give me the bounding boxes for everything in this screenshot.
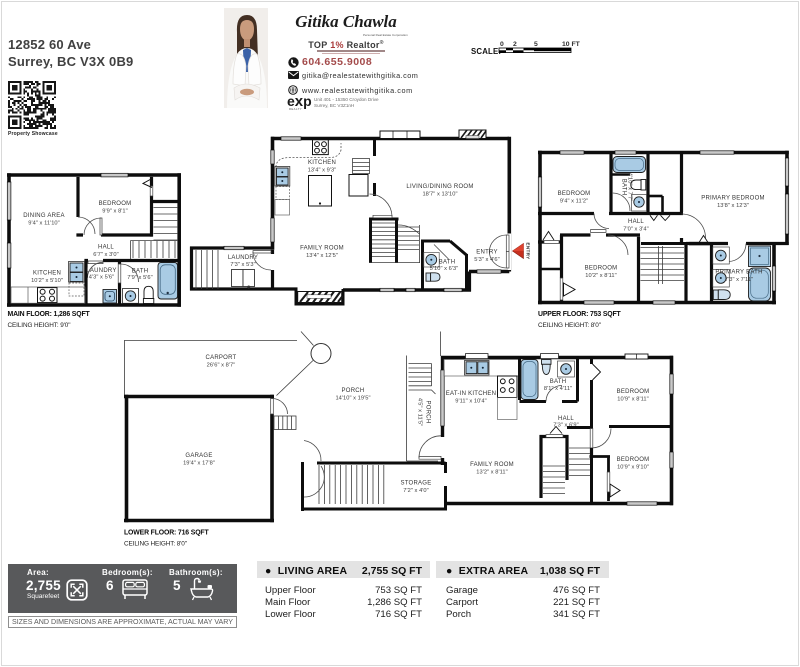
svg-text:BEDROOM: BEDROOM xyxy=(585,266,618,272)
svg-text:5'3" x 4'6": 5'3" x 4'6" xyxy=(474,257,499,263)
svg-text:LAUNDRY: LAUNDRY xyxy=(228,255,258,261)
svg-text:4'10" x 7'7": 4'10" x 7'7" xyxy=(627,173,633,202)
svg-text:9'4" x 11'2": 9'4" x 11'2" xyxy=(560,199,588,205)
svg-text:LIVING/DINING ROOM: LIVING/DINING ROOM xyxy=(406,184,473,190)
svg-text:HALL: HALL xyxy=(558,416,574,422)
svg-text:BATH: BATH xyxy=(550,379,567,385)
svg-text:FAMILY ROOM: FAMILY ROOM xyxy=(470,462,514,468)
svg-text:18'7" x 13'10": 18'7" x 13'10" xyxy=(422,192,457,198)
svg-text:HALL: HALL xyxy=(628,219,644,225)
svg-text:UPPER FLOOR: 753 SQFT: UPPER FLOOR: 753 SQFT xyxy=(538,311,622,318)
svg-text:10'9" x 8'11": 10'9" x 8'11" xyxy=(617,397,648,403)
svg-text:KITCHEN: KITCHEN xyxy=(308,160,336,166)
svg-text:13'4" x 9'3": 13'4" x 9'3" xyxy=(308,168,337,174)
svg-text:EAT-IN KITCHEN: EAT-IN KITCHEN xyxy=(446,391,496,397)
svg-text:9'11" x 10'4": 9'11" x 10'4" xyxy=(455,398,486,404)
svg-text:PRIMARY BATH: PRIMARY BATH xyxy=(715,270,762,276)
svg-text:26'6" x 8'7": 26'6" x 8'7" xyxy=(207,363,236,369)
svg-text:13'8" x 12'3": 13'8" x 12'3" xyxy=(717,203,749,209)
svg-text:LAUNDRY: LAUNDRY xyxy=(86,268,116,274)
svg-text:BEDROOM: BEDROOM xyxy=(558,191,591,197)
svg-text:7'0" x 3'4": 7'0" x 3'4" xyxy=(623,227,648,233)
svg-text:7'2" x 4'0": 7'2" x 4'0" xyxy=(403,488,428,494)
svg-text:DINING AREA: DINING AREA xyxy=(23,213,64,219)
svg-text:BEDROOM: BEDROOM xyxy=(99,201,132,207)
svg-text:PORCH: PORCH xyxy=(342,388,365,394)
svg-text:19'4" x 17'8": 19'4" x 17'8" xyxy=(183,461,215,467)
svg-text:6'7" x 3'0": 6'7" x 3'0" xyxy=(93,252,118,258)
svg-text:10 FT: 10 FT xyxy=(562,41,581,48)
svg-text:GARAGE: GARAGE xyxy=(185,453,212,459)
svg-text:HALL: HALL xyxy=(98,245,114,251)
svg-text:0: 0 xyxy=(500,41,504,48)
svg-text:7'3" x 7'11": 7'3" x 7'11" xyxy=(725,277,753,283)
svg-text:PORCH: PORCH xyxy=(425,401,431,424)
svg-text:9'4" x 11'10": 9'4" x 11'10" xyxy=(28,221,59,227)
svg-text:BEDROOM: BEDROOM xyxy=(617,457,650,463)
svg-text:13'2" x 8'11": 13'2" x 8'11" xyxy=(476,470,507,476)
svg-text:BATH: BATH xyxy=(621,179,627,196)
svg-text:CEILING HEIGHT: 8'0": CEILING HEIGHT: 8'0" xyxy=(538,322,601,329)
svg-text:10'2" x 8'11": 10'2" x 8'11" xyxy=(585,273,616,279)
svg-text:LOWER FLOOR: 716 SQFT: LOWER FLOOR: 716 SQFT xyxy=(124,530,209,537)
svg-text:CEILING HEIGHT: 8'0": CEILING HEIGHT: 8'0" xyxy=(124,541,187,548)
svg-text:MAIN FLOOR: 1,286 SQFT: MAIN FLOOR: 1,286 SQFT xyxy=(8,311,91,318)
svg-text:13'4" x 12'5": 13'4" x 12'5" xyxy=(306,253,338,259)
svg-text:4'3" x 5'6": 4'3" x 5'6" xyxy=(89,274,114,280)
svg-text:2: 2 xyxy=(513,41,517,48)
svg-text:FAMILY ROOM: FAMILY ROOM xyxy=(300,246,344,252)
svg-text:10'9" x 9'10": 10'9" x 9'10" xyxy=(617,465,649,471)
svg-text:8'1" x 4'11": 8'1" x 4'11" xyxy=(544,386,572,392)
svg-text:9'9" x 8'1": 9'9" x 8'1" xyxy=(102,209,127,215)
svg-text:CARPORT: CARPORT xyxy=(206,355,237,361)
svg-text:5: 5 xyxy=(534,41,538,48)
svg-text:5'10" x 6'3": 5'10" x 6'3" xyxy=(430,266,459,272)
svg-text:PRIMARY BEDROOM: PRIMARY BEDROOM xyxy=(701,196,765,202)
svg-text:4'5" x 11'5": 4'5" x 11'5" xyxy=(417,398,423,426)
svg-text:7'9" x 5'6": 7'9" x 5'6" xyxy=(127,275,152,281)
svg-text:7'3" x 5'3": 7'3" x 5'3" xyxy=(230,262,255,268)
svg-text:14'10" x 19'5": 14'10" x 19'5" xyxy=(335,396,370,402)
svg-text:10'2" x 5'10": 10'2" x 5'10" xyxy=(31,278,63,284)
svg-text:BEDROOM: BEDROOM xyxy=(617,389,650,395)
svg-text:BATH: BATH xyxy=(132,269,149,275)
svg-text:ENTRY: ENTRY xyxy=(476,250,497,256)
svg-text:BATH: BATH xyxy=(439,260,456,266)
svg-text:CEILING HEIGHT: 9'0": CEILING HEIGHT: 9'0" xyxy=(8,322,71,329)
svg-text:KITCHEN: KITCHEN xyxy=(33,271,61,277)
svg-text:STORAGE: STORAGE xyxy=(401,481,432,487)
